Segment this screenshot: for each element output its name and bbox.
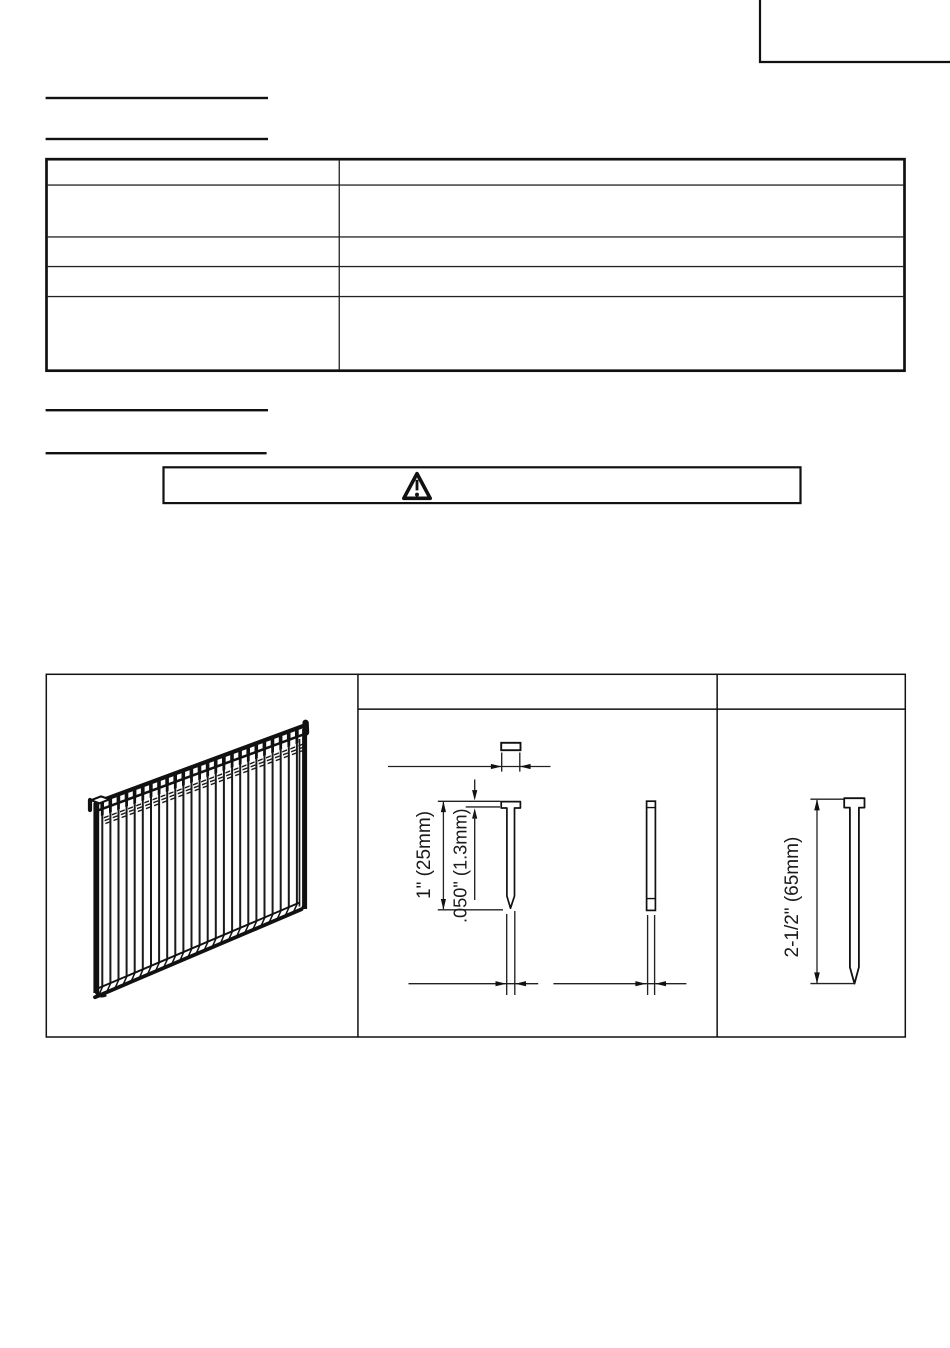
svg-text:1" (25mm): 1" (25mm) [414, 811, 435, 899]
svg-text:2-1/2" (65mm): 2-1/2" (65mm) [782, 837, 803, 958]
svg-text:.050" (1.3mm): .050" (1.3mm) [451, 808, 471, 923]
